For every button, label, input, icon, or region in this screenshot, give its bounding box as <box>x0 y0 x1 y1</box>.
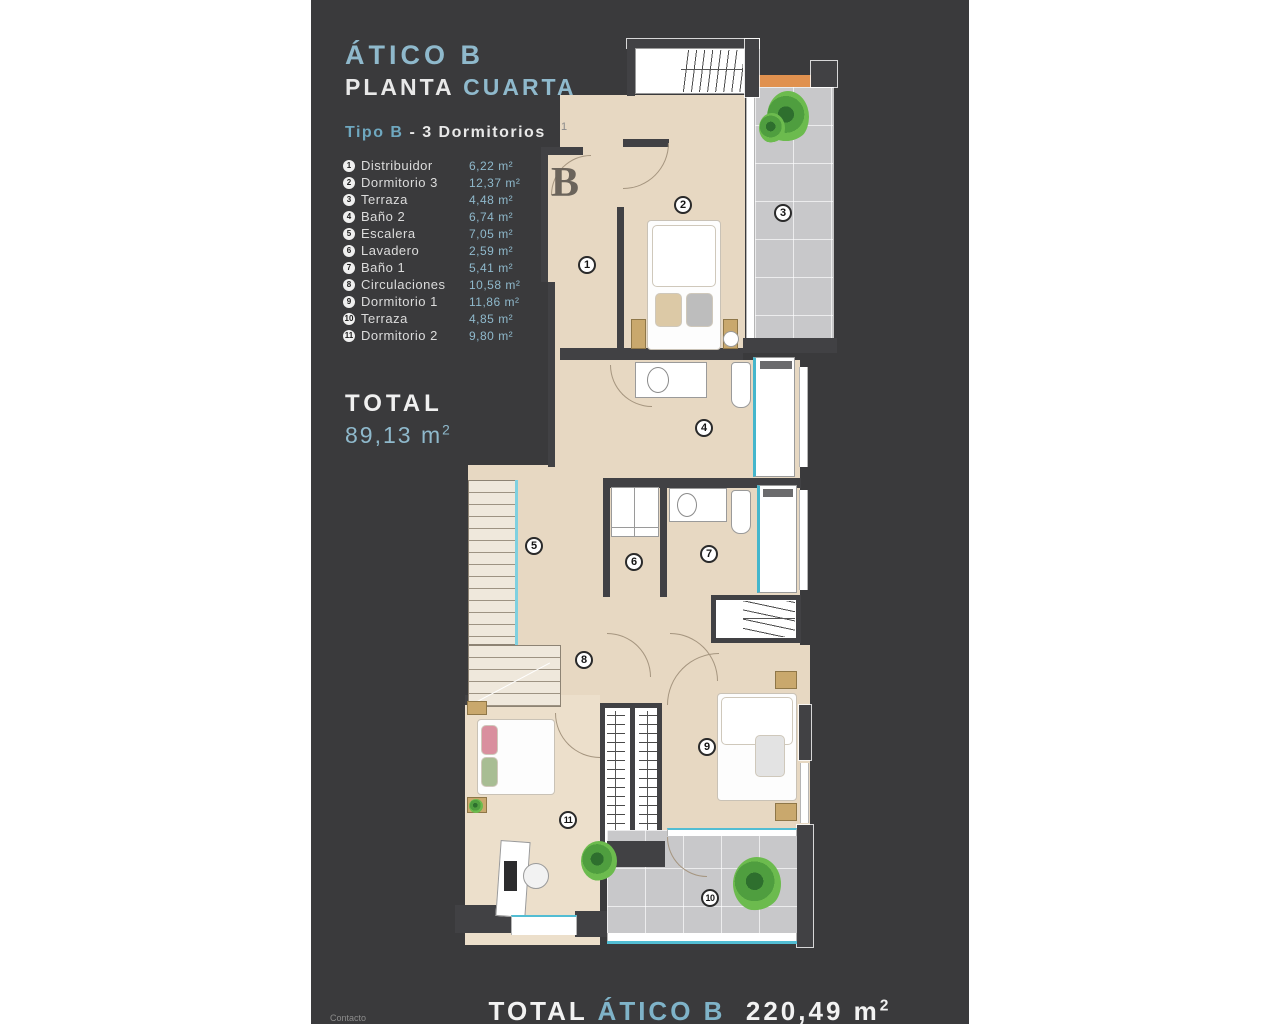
legend-bullet: 6 <box>343 245 355 257</box>
terraza3-orange-planter <box>758 75 812 87</box>
bano1-bathtub <box>757 485 797 593</box>
dormitorio2-pillow-green <box>481 757 498 787</box>
footer-total-sup: 2 <box>880 997 892 1014</box>
bano2-shelf <box>760 361 792 369</box>
dormitorio2-chair <box>523 863 549 889</box>
room-badge-4: 4 <box>695 419 713 437</box>
floor-plan: B 1 1 2 3 4 5 6 7 8 9 10 11 <box>455 35 855 960</box>
room1-2-divider-wall <box>617 207 624 353</box>
bano1-window <box>799 490 808 590</box>
dormitorio2-laptop <box>504 861 517 891</box>
bottom-mid-wall <box>575 911 611 937</box>
room-badge-7: 7 <box>700 545 718 563</box>
terraza10-bottom-glass <box>607 933 797 941</box>
lavadero-left-wall <box>603 485 610 597</box>
legend-bullet: 7 <box>343 262 355 274</box>
terraza3-plant-small <box>759 113 785 143</box>
corridor-left-wall <box>548 282 555 467</box>
terraza10-plant-right <box>733 857 781 911</box>
legend-bullet: 5 <box>343 228 355 240</box>
subtitle-white: PLANTA <box>345 74 454 100</box>
lavadero-bano1-wall <box>660 485 667 597</box>
legend-label: Dormitorio 3 <box>361 175 469 190</box>
room-badge-11: 11 <box>559 811 577 829</box>
total-value: 89,13 m2 <box>345 422 452 449</box>
closet-hangers <box>681 50 743 92</box>
bano1-sink <box>677 493 697 517</box>
closet-top-wall <box>627 39 759 48</box>
legend-label: Distribuidor <box>361 158 469 173</box>
dormitorio1-wardrobe-hangers <box>743 601 795 637</box>
dormitorio3-bed-pillow <box>652 225 716 287</box>
footer-total-label: TOTAL <box>489 996 588 1026</box>
room-badge-5: 5 <box>525 537 543 555</box>
bano1-shelf <box>763 489 793 497</box>
dormitorio3-cushion-gray <box>686 293 713 327</box>
plan-letter-b: B <box>551 159 579 207</box>
terraza10-top-glass <box>667 828 797 836</box>
legend-bullet: 3 <box>343 194 355 206</box>
bano2-window <box>799 367 808 467</box>
total-value-sup: 2 <box>442 422 452 437</box>
legend-bullet: 2 <box>343 177 355 189</box>
bano2-toilet <box>731 362 751 408</box>
legend-bullet: 9 <box>343 296 355 308</box>
room-badge-8: 8 <box>575 651 593 669</box>
central-wardrobe-hangers-left <box>607 711 625 841</box>
legend-label: Dormitorio 2 <box>361 328 469 343</box>
dormitorio3-nightstand-left <box>631 319 646 349</box>
central-wardrobe-divider <box>630 703 635 848</box>
closet-left-wall <box>627 39 635 96</box>
legend-label: Dormitorio 1 <box>361 294 469 309</box>
terraza10-bottom-glass-line <box>607 941 797 944</box>
room-badge-3: 3 <box>774 204 792 222</box>
dormitorio1-window-pillar <box>799 705 811 760</box>
contact-link[interactable]: Contacto <box>330 1013 366 1023</box>
type-accent: Tipo B <box>345 124 403 141</box>
total-label: TOTAL <box>345 390 443 418</box>
legend-label: Baño 1 <box>361 260 469 275</box>
dormitorio1-window <box>800 763 809 823</box>
room-badge-10: 10 <box>701 889 719 907</box>
entry-left-wall <box>541 147 548 282</box>
legend-bullet: 1 <box>343 160 355 172</box>
legend-bullet: 8 <box>343 279 355 291</box>
closet-right-pillar <box>745 39 759 97</box>
dormitorio1-cushion <box>755 735 785 777</box>
dormitorio1-nightstand-top <box>775 671 797 689</box>
dormitorio1-wardrobe-rail <box>743 618 795 619</box>
lavadero-cabinet-shelf <box>611 527 659 528</box>
legend-label: Circulaciones <box>361 277 469 292</box>
terraza3-bottom-wall <box>743 338 837 353</box>
legend-label: Terraza <box>361 311 469 326</box>
dormitorio1-nightstand-bottom <box>775 803 797 821</box>
room-badge-2: 2 <box>674 196 692 214</box>
dormitorio3-cushion-tan <box>655 293 682 327</box>
central-wardrobe-rail-right <box>647 711 648 841</box>
bano1-toilet <box>731 490 751 534</box>
dormitorio2-nightstand-top <box>467 701 487 715</box>
central-wardrobe-hangers-right <box>639 711 657 841</box>
dormitorio2-plant-small <box>469 799 483 813</box>
room-badge-6: 6 <box>625 553 643 571</box>
lavadero-cabinet-split <box>634 487 635 537</box>
stray-mark: 1 <box>561 121 567 133</box>
footer-total-name: ÁTICO B <box>598 996 726 1026</box>
room-badge-9: 9 <box>698 738 716 756</box>
terraza10-plant-left <box>581 841 617 881</box>
legend-label: Escalera <box>361 226 469 241</box>
terraza3-glass-wall <box>746 87 755 350</box>
footer-total-value: 220,49 m <box>746 996 880 1026</box>
total-value-number: 89,13 m <box>345 422 442 448</box>
closet-rail <box>681 69 743 70</box>
dormitorio3-stool <box>723 331 739 347</box>
dormitorio2-window <box>511 915 577 935</box>
footer-total: TOTAL ÁTICO B 220,49 m2 <box>460 996 920 1027</box>
bano2-bathtub <box>753 357 795 477</box>
terraza10-right-pillar <box>797 825 813 947</box>
legend-label: Baño 2 <box>361 209 469 224</box>
dormitorio2-pillow-pink <box>481 725 498 755</box>
legend-bullet: 10 <box>343 313 355 325</box>
legend-label: Lavadero <box>361 243 469 258</box>
lavadero-cabinet <box>611 487 659 537</box>
legend-bullet: 4 <box>343 211 355 223</box>
terraza3-corner-wall <box>811 61 837 87</box>
central-wardrobe-rail-left <box>615 711 616 841</box>
legend-bullet: 11 <box>343 330 355 342</box>
room-badge-1: 1 <box>578 256 596 274</box>
legend-label: Terraza <box>361 192 469 207</box>
